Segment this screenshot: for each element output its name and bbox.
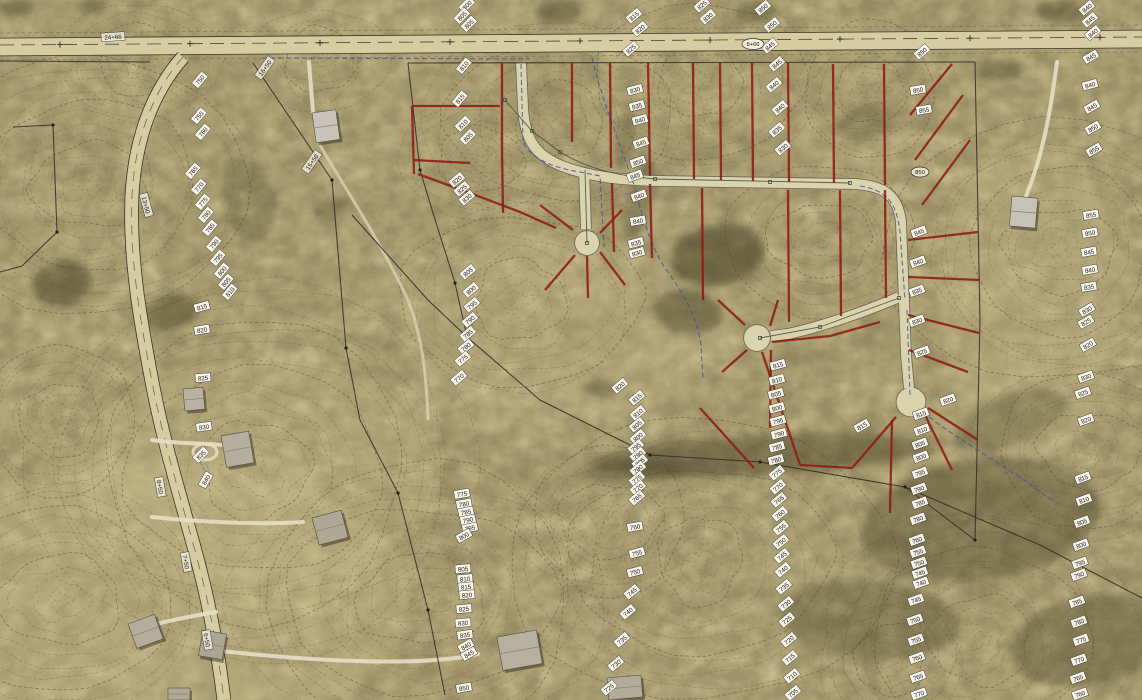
station-label: 24+66 [101, 32, 125, 43]
boundary-node [648, 453, 651, 456]
house [312, 109, 342, 145]
tree-shadow-patch [536, 0, 580, 24]
contour-elevation-label: 820 [459, 590, 475, 600]
lot-line [610, 63, 611, 168]
lot-line [885, 190, 886, 298]
boundary-node [344, 346, 347, 349]
boundary-node [973, 538, 976, 541]
house [183, 387, 207, 414]
lot-line [770, 350, 771, 428]
lot-line [502, 150, 503, 213]
lot-line [788, 63, 789, 182]
boundary-node [396, 491, 399, 494]
contour-elevation-label-text: 830 [458, 620, 469, 628]
contour-elevation-label-text: 825 [198, 375, 209, 383]
spot-elevation-text: 8+66 [746, 42, 759, 48]
spot-elevation-label: 8+66 [742, 39, 764, 50]
top-road-surface [0, 39, 1142, 47]
house [221, 431, 257, 471]
boundary-node [426, 608, 429, 611]
lot-line [587, 256, 588, 298]
boundary-node [903, 485, 906, 488]
spot-elevation-label: 850 [911, 167, 929, 177]
lot-line [840, 190, 841, 316]
boundary-node [418, 168, 421, 171]
contour-elevation-label: 830 [455, 618, 471, 628]
contour-elevation-label: 825 [195, 373, 211, 383]
lot-line [884, 64, 885, 185]
contour-elevation-label-text: 830 [199, 424, 211, 432]
lot-line [833, 64, 834, 183]
boundary-node [55, 230, 58, 233]
boundary-node [758, 460, 761, 463]
spot-elevation-text: 850 [915, 170, 925, 176]
boundary-node [330, 178, 333, 181]
contour-elevation-label-text: 825 [459, 606, 470, 614]
tree-shadow-patch [584, 379, 616, 397]
contour-elevation-label-text: 820 [462, 592, 473, 600]
lot-line [752, 63, 753, 181]
contour-elevation-label: 825 [456, 604, 472, 614]
boundary-node [453, 281, 456, 284]
lot-line [702, 188, 703, 300]
aerial-plat-map: 7507557607657707757807857907958008058108… [0, 0, 1142, 700]
house [497, 630, 545, 674]
lot-line [788, 190, 789, 322]
contour-elevation-label: 805 [455, 564, 471, 574]
map-canvas: 7507557607657707757807857907958008058108… [0, 0, 1142, 700]
house [1009, 196, 1040, 231]
house [168, 688, 192, 700]
culdesac-surface [744, 325, 770, 351]
station-label-text: 24+66 [104, 34, 122, 42]
contour-elevation-label-text: 805 [458, 566, 469, 574]
boundary-node [51, 123, 54, 126]
lot-line [720, 63, 721, 180]
lot-line [693, 63, 694, 179]
